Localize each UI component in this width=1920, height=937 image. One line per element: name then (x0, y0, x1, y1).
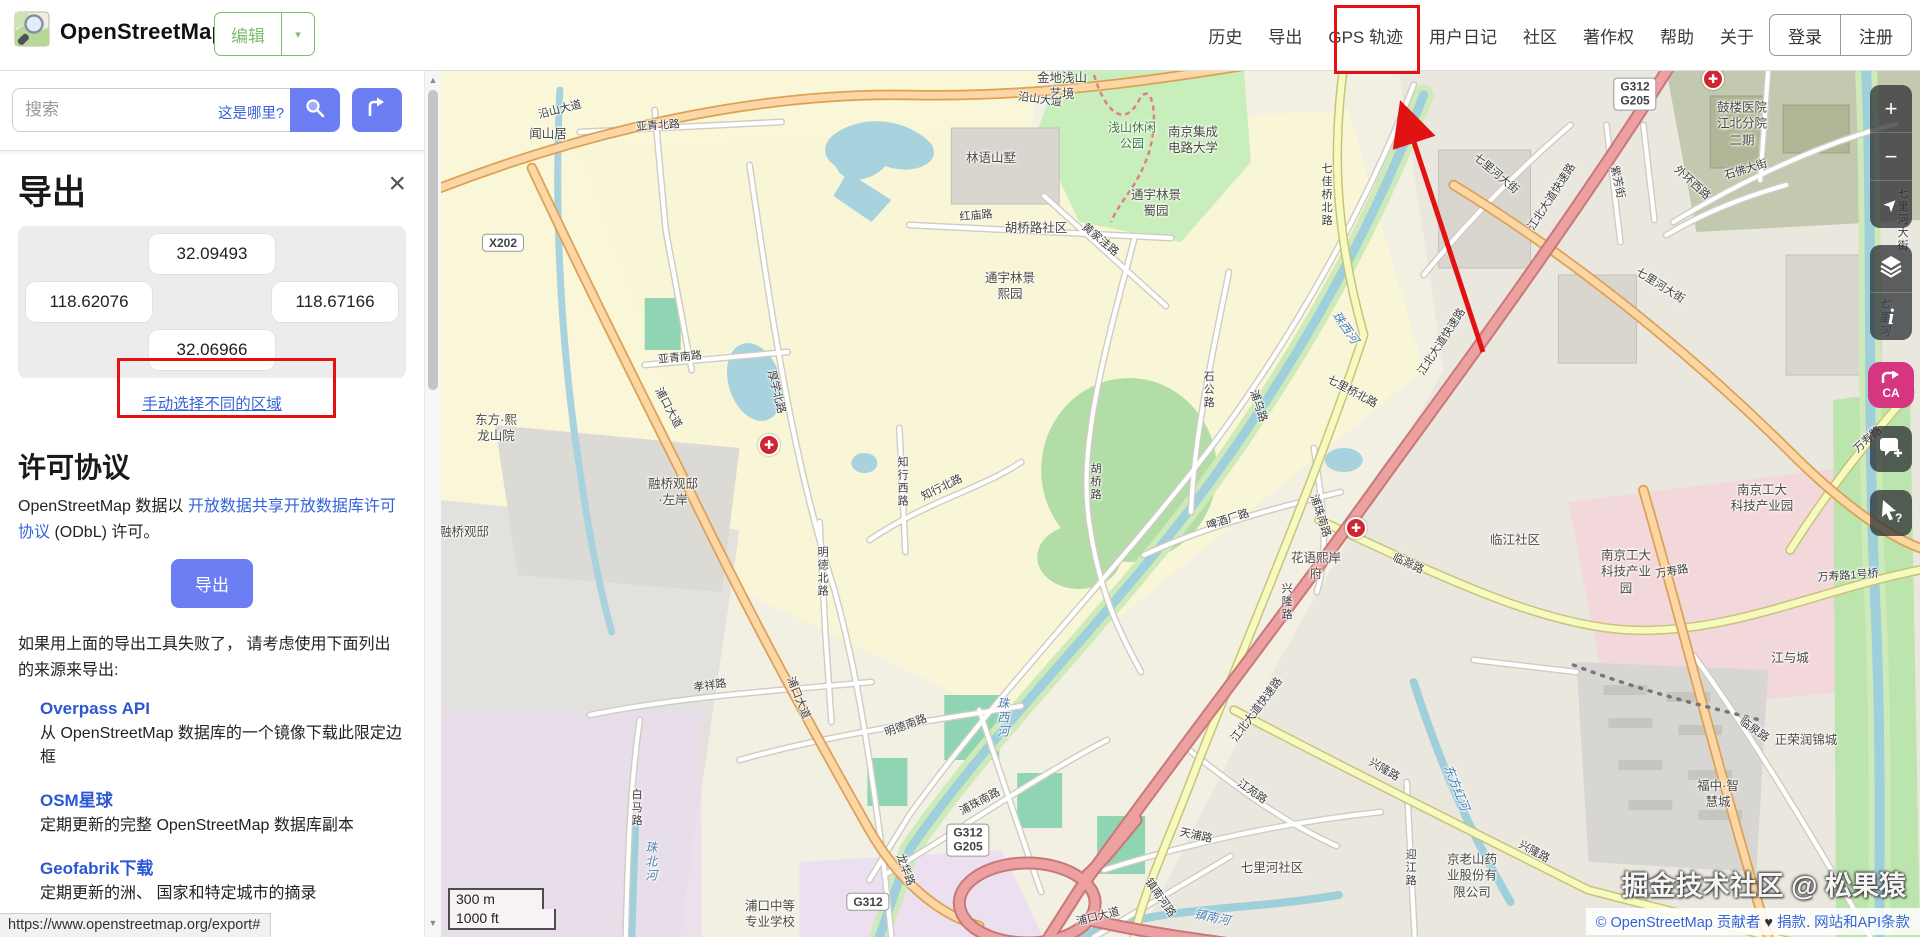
nav-item-6[interactable]: 帮助 (1660, 23, 1694, 48)
close-icon[interactable]: × (388, 169, 406, 199)
search-button[interactable] (290, 88, 340, 132)
locate-icon: ➤ (1879, 192, 1903, 216)
source-desc: 定期更新的洲、 国家和特定城市的摘录 (40, 882, 406, 906)
translate-ca-label: CA (1882, 387, 1899, 399)
bbox-north-input[interactable] (149, 234, 275, 274)
source-link-1[interactable]: OSM星球 (40, 786, 406, 811)
query-cursor-icon: ? (1878, 498, 1904, 529)
license-text-pre: OpenStreetMap 数据以 (18, 498, 188, 515)
osm-contributors-link[interactable]: © OpenStreetMap 贡献者 (1596, 915, 1761, 931)
fallback-text: 如果用上面的导出工具失败了， 请考虑使用下面列出的来源来导出: (18, 632, 406, 683)
site-title: OpenStreetMap (60, 19, 225, 45)
where-is-this-link[interactable]: 这是哪里? (218, 102, 284, 123)
auth-buttons: 登录 注册 (1769, 14, 1912, 56)
sidebar: 这是哪里? 导出 × (0, 70, 424, 937)
zoom-out-button[interactable]: − (1870, 132, 1912, 180)
info-icon: i (1888, 304, 1894, 330)
query-features-button[interactable]: ? (1870, 490, 1912, 536)
scale-metric: 300 m (448, 888, 544, 909)
locate-button[interactable]: ➤ (1870, 180, 1912, 228)
translate-button[interactable]: CA (1868, 362, 1914, 408)
export-panel: 导出 × 手动选择不同的区域 许可协议 OpenStreetMap 数据以 开放… (0, 165, 424, 906)
status-url-tooltip: https://www.openstreetmap.org/export# (0, 913, 271, 937)
layers-icon (1879, 254, 1903, 284)
directions-icon (365, 96, 389, 125)
attrib-separator: . (1806, 915, 1814, 931)
scroll-up-icon[interactable]: ▲ (425, 72, 441, 88)
map-graphics (440, 70, 1920, 937)
zoom-in-button[interactable]: + (1870, 85, 1912, 132)
scale-imperial: 1000 ft (448, 909, 556, 930)
zoom-controls: + − ➤ (1870, 85, 1912, 228)
directions-button[interactable] (352, 88, 402, 132)
terms-link[interactable]: 网站和API条款 (1814, 915, 1910, 931)
source-item: Geofabrik下载定期更新的洲、 国家和特定城市的摘录 (40, 854, 406, 906)
license-paragraph: OpenStreetMap 数据以 开放数据共享开放数据库许可协议 (ODbL)… (18, 494, 406, 545)
watermark-text: 掘金技术社区 @ 松果猿 (1622, 864, 1906, 903)
login-button[interactable]: 登录 (1770, 15, 1841, 55)
edit-caret-icon[interactable]: ▾ (281, 13, 314, 55)
source-desc: 从 OpenStreetMap 数据库的一个镜像下载此限定边框 (40, 722, 406, 770)
layer-controls: i (1870, 245, 1912, 340)
heart-icon: ♥ (1764, 915, 1773, 931)
scroll-down-icon[interactable]: ▼ (425, 915, 441, 931)
translate-arrow-icon (1881, 371, 1901, 387)
brand[interactable]: OpenStreetMap (14, 11, 225, 52)
map-key-button[interactable]: i (1870, 292, 1912, 340)
export-panel-title: 导出 (18, 165, 86, 214)
source-desc: 定期更新的完整 OpenStreetMap 数据库副本 (40, 814, 406, 838)
svg-text:?: ? (1895, 511, 1902, 524)
nav-item-5[interactable]: 著作权 (1583, 23, 1634, 48)
donate-link[interactable]: 捐款 (1777, 915, 1806, 931)
license-heading: 许可协议 (18, 446, 406, 486)
map-canvas[interactable]: X202G312 G205G312 G205G312沿山大道沿山大道闻山居亚青北… (440, 70, 1920, 937)
search-row: 这是哪里? (0, 70, 424, 151)
map-attribution: © OpenStreetMap 贡献者 ♥ 捐款. 网站和API条款 (1586, 908, 1920, 935)
bbox-west-input[interactable] (26, 282, 152, 322)
export-sources-list: Overpass API从 OpenStreetMap 数据库的一个镜像下载此限… (18, 699, 406, 906)
minus-icon: − (1885, 144, 1898, 170)
scrollbar-thumb[interactable] (428, 90, 438, 390)
bbox-selector (18, 226, 406, 378)
nav-item-2[interactable]: GPS 轨迹 (1328, 23, 1403, 48)
top-header: OpenStreetMap 编辑 ▾ 历史导出GPS 轨迹用户日记社区著作权帮助… (0, 0, 1920, 71)
nav-item-7[interactable]: 关于 (1720, 23, 1754, 48)
sidebar-scrollbar[interactable]: ▲ ▼ (424, 70, 441, 937)
add-note-button[interactable] (1870, 426, 1912, 472)
note-bubble-icon (1878, 435, 1904, 464)
search-icon (304, 97, 326, 124)
export-button[interactable]: 导出 (171, 559, 253, 608)
layers-button[interactable] (1870, 245, 1912, 292)
nav-item-4[interactable]: 社区 (1523, 23, 1557, 48)
plus-icon: + (1885, 96, 1898, 122)
nav-item-1[interactable]: 导出 (1268, 23, 1302, 48)
source-item: Overpass API从 OpenStreetMap 数据库的一个镜像下载此限… (40, 699, 406, 770)
signup-button[interactable]: 注册 (1841, 15, 1911, 55)
map-scale: 300 m 1000 ft (448, 888, 556, 930)
page: OpenStreetMap 编辑 ▾ 历史导出GPS 轨迹用户日记社区著作权帮助… (0, 0, 1920, 937)
nav-item-0[interactable]: 历史 (1208, 23, 1242, 48)
top-nav: 历史导出GPS 轨迹用户日记社区著作权帮助关于 (1208, 0, 1754, 70)
source-link-2[interactable]: Geofabrik下载 (40, 854, 406, 879)
source-link-0[interactable]: Overpass API (40, 699, 406, 719)
nav-item-3[interactable]: 用户日记 (1429, 23, 1497, 48)
bbox-south-input[interactable] (149, 330, 275, 370)
edit-button[interactable]: 编辑 (215, 13, 281, 55)
edit-split-button: 编辑 ▾ (214, 12, 315, 56)
source-item: OSM星球定期更新的完整 OpenStreetMap 数据库副本 (40, 786, 406, 838)
osm-logo-icon (14, 11, 50, 52)
bbox-east-input[interactable] (272, 282, 398, 322)
license-text-post: (ODbL) 许可。 (50, 524, 159, 541)
manual-select-area-link[interactable]: 手动选择不同的区域 (142, 396, 282, 413)
